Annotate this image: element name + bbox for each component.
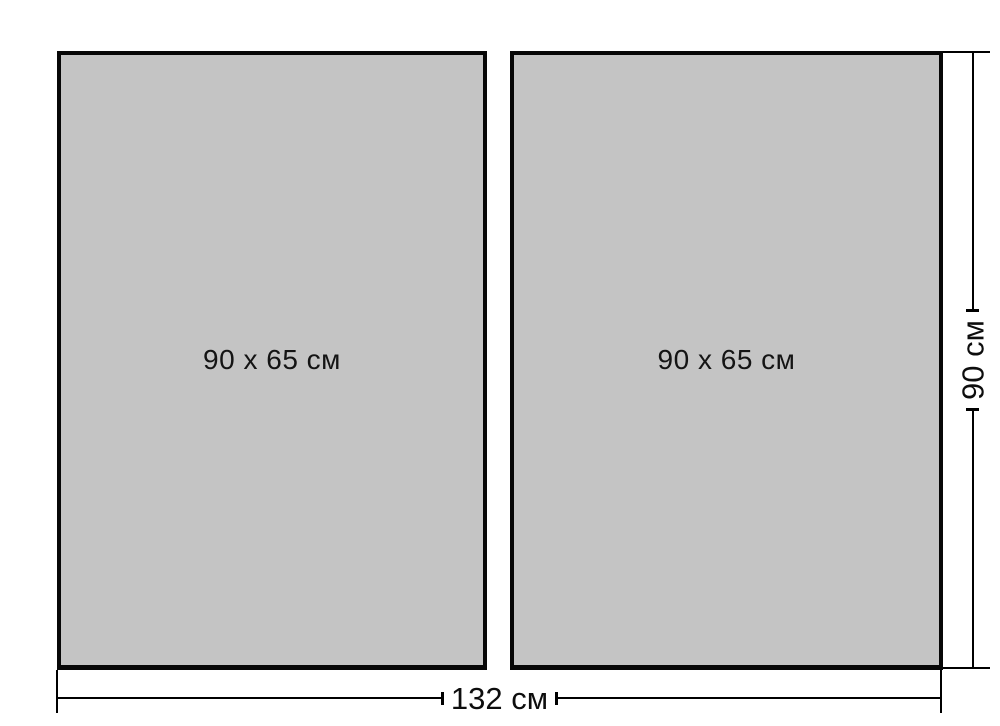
height-dimension-line-segment xyxy=(972,411,974,669)
height-dimension-label: 90 см xyxy=(957,320,988,400)
panel-left: 90 x 65 см xyxy=(57,51,487,670)
height-dimension-label-box: 90 см xyxy=(957,312,988,408)
panel-right-size-label: 90 x 65 см xyxy=(658,344,796,376)
width-dimension-line: 132 см xyxy=(57,678,942,718)
dimension-diagram: 90 x 65 см 90 x 65 см 132 см 90 см xyxy=(0,0,1000,726)
width-dimension-label: 132 см xyxy=(444,683,555,714)
panel-left-size-label: 90 x 65 см xyxy=(203,344,341,376)
height-dimension-line-segment xyxy=(972,51,974,309)
panel-right: 90 x 65 см xyxy=(510,51,943,670)
height-dimension-line: 90 см xyxy=(957,51,988,669)
width-dimension-line-segment xyxy=(57,697,441,699)
width-dimension-line-segment xyxy=(558,697,942,699)
